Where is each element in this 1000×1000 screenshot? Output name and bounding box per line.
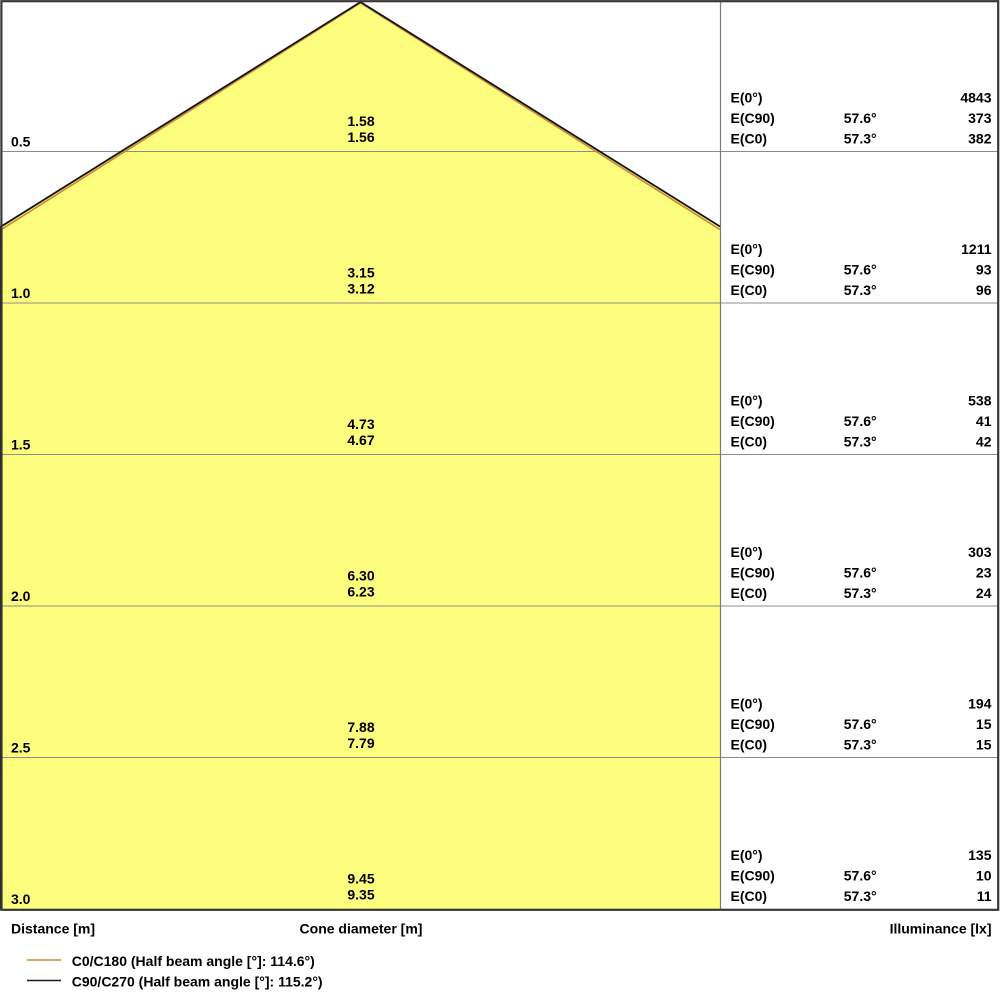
svg-text:57.3°: 57.3° — [844, 131, 877, 147]
svg-text:382: 382 — [968, 131, 992, 147]
svg-text:E(0°): E(0°) — [731, 90, 763, 106]
svg-text:538: 538 — [968, 393, 992, 409]
svg-text:57.3°: 57.3° — [844, 434, 877, 450]
svg-text:93: 93 — [976, 262, 992, 278]
svg-text:57.6°: 57.6° — [844, 565, 877, 581]
svg-text:1211: 1211 — [961, 241, 992, 257]
svg-text:4.67: 4.67 — [347, 432, 374, 448]
svg-text:57.6°: 57.6° — [844, 413, 877, 429]
svg-text:E(C90): E(C90) — [731, 413, 775, 429]
svg-text:303: 303 — [968, 544, 992, 560]
svg-text:1.5: 1.5 — [11, 436, 31, 452]
svg-text:42: 42 — [976, 434, 992, 450]
svg-text:E(C0): E(C0) — [731, 737, 768, 753]
svg-text:Distance [m]: Distance [m] — [11, 921, 95, 937]
svg-text:96: 96 — [976, 282, 992, 298]
svg-text:15: 15 — [976, 716, 992, 732]
svg-text:E(0°): E(0°) — [731, 241, 763, 257]
svg-text:E(C0): E(C0) — [731, 282, 768, 298]
svg-text:Illuminance [lx]: Illuminance [lx] — [890, 921, 992, 937]
svg-text:57.3°: 57.3° — [844, 585, 877, 601]
svg-text:E(C0): E(C0) — [731, 131, 768, 147]
svg-text:7.88: 7.88 — [347, 719, 374, 735]
svg-text:1.58: 1.58 — [347, 113, 374, 129]
svg-text:E(C0): E(C0) — [731, 888, 768, 904]
svg-text:C0/C180 (Half beam angle [°]:: C0/C180 (Half beam angle [°]: 114.6°) — [72, 953, 315, 969]
svg-text:Cone diameter [m]: Cone diameter [m] — [300, 921, 423, 937]
svg-text:6.23: 6.23 — [347, 584, 374, 600]
svg-text:4.73: 4.73 — [347, 416, 374, 432]
svg-text:3.0: 3.0 — [11, 891, 31, 907]
svg-text:9.35: 9.35 — [347, 887, 374, 903]
svg-text:135: 135 — [968, 847, 992, 863]
svg-text:11: 11 — [977, 888, 992, 904]
svg-text:E(0°): E(0°) — [731, 544, 763, 560]
svg-text:E(C0): E(C0) — [731, 585, 768, 601]
svg-text:E(C90): E(C90) — [731, 110, 775, 126]
svg-text:1.56: 1.56 — [347, 129, 374, 145]
svg-text:57.6°: 57.6° — [844, 110, 877, 126]
svg-text:E(C90): E(C90) — [731, 262, 775, 278]
svg-text:3.15: 3.15 — [347, 265, 374, 281]
svg-text:2.0: 2.0 — [11, 588, 31, 604]
svg-text:194: 194 — [968, 696, 992, 712]
svg-text:E(C90): E(C90) — [731, 716, 775, 732]
svg-text:57.6°: 57.6° — [844, 716, 877, 732]
svg-text:41: 41 — [976, 413, 992, 429]
svg-text:3.12: 3.12 — [347, 281, 374, 297]
svg-text:9.45: 9.45 — [347, 871, 374, 887]
svg-text:1.0: 1.0 — [11, 285, 31, 301]
svg-text:0.5: 0.5 — [11, 133, 31, 149]
svg-text:E(C90): E(C90) — [731, 868, 775, 884]
svg-text:10: 10 — [976, 868, 992, 884]
svg-text:2.5: 2.5 — [11, 739, 31, 755]
svg-text:C90/C270 (Half beam angle [°]:: C90/C270 (Half beam angle [°]: 115.2°) — [72, 974, 323, 990]
svg-text:E(0°): E(0°) — [731, 847, 763, 863]
svg-text:15: 15 — [976, 737, 992, 753]
svg-text:57.3°: 57.3° — [844, 282, 877, 298]
svg-text:6.30: 6.30 — [347, 568, 374, 584]
svg-text:373: 373 — [968, 110, 992, 126]
svg-text:57.3°: 57.3° — [844, 737, 877, 753]
svg-text:4843: 4843 — [960, 90, 991, 106]
svg-text:23: 23 — [976, 565, 992, 581]
svg-text:E(0°): E(0°) — [731, 393, 763, 409]
svg-text:24: 24 — [976, 585, 992, 601]
svg-text:57.3°: 57.3° — [844, 888, 877, 904]
svg-text:57.6°: 57.6° — [844, 262, 877, 278]
svg-text:E(C0): E(C0) — [731, 434, 768, 450]
svg-text:E(0°): E(0°) — [731, 696, 763, 712]
svg-text:E(C90): E(C90) — [731, 565, 775, 581]
svg-text:57.6°: 57.6° — [844, 868, 877, 884]
svg-text:7.79: 7.79 — [347, 735, 374, 751]
